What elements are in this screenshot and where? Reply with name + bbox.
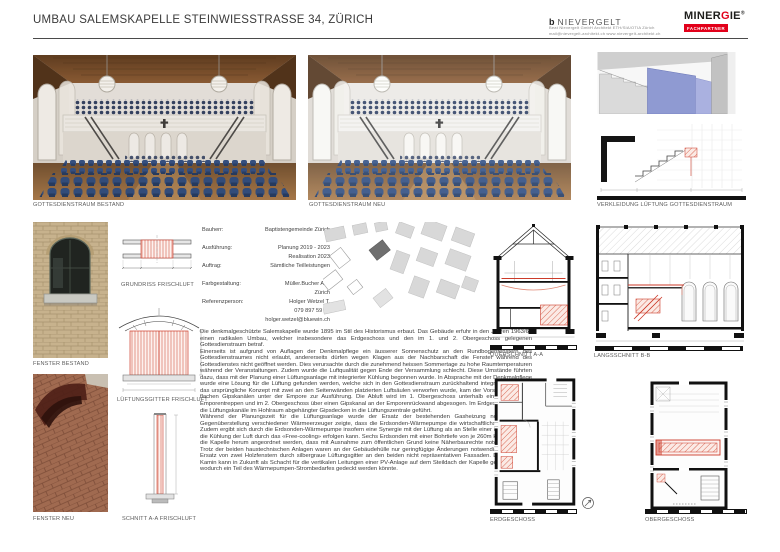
architect-address-line2: mail@nievergelt-architekt.ch www.nieverg… xyxy=(549,31,661,36)
info-value: holger.wetzel@bluewin.ch xyxy=(265,316,330,325)
drawing-querschnitt-aa xyxy=(490,223,577,343)
photo-gottesdienstraum-neu xyxy=(308,55,571,200)
info-row: Farbgestaltung:Müller.Bucher AG, xyxy=(202,280,330,289)
info-label: Referenzperson: xyxy=(202,298,243,307)
caption-langsschnitt: LANGSSCHNITT B-B xyxy=(594,353,650,359)
info-row: Referenzperson:Holger Wetzel T. xyxy=(202,298,330,307)
info-label: Farbgestaltung: xyxy=(202,280,241,289)
paragraph: Einerseits ist aufgrund von Auflagen der… xyxy=(200,349,532,414)
site-plan-chapel-footprint xyxy=(369,240,390,261)
caption-erdgeschoss: ERDGESCHOSS xyxy=(490,517,535,523)
minergie-text-g: G xyxy=(721,10,730,22)
scale-bar xyxy=(597,196,746,200)
drawing-obergeschoss xyxy=(649,380,729,511)
drawing-lueftungsgitter-frischluft xyxy=(113,298,205,394)
drawing-lueftung-detail xyxy=(597,118,746,194)
info-value: Sämtliche Teilleistungen xyxy=(270,262,330,271)
caption-fenster-bestand: FENSTER BESTAND xyxy=(33,361,89,367)
north-arrow-icon xyxy=(581,496,595,510)
info-row: Zürich xyxy=(202,289,330,298)
header-divider xyxy=(33,38,748,39)
info-row: Auftrag:Sämtliche Teilleistungen xyxy=(202,262,330,271)
info-value: Baptistengemeinde Zürich xyxy=(265,226,330,235)
photo-gottesdienstraum-bestand xyxy=(33,55,296,200)
render-verkleidung-lueftung xyxy=(597,52,736,114)
page-title: UMBAU SALEMSKAPELLE STEINWIESSTRASSE 34,… xyxy=(33,14,373,26)
minergie-fachpartner-badge: FACHPARTNER xyxy=(684,24,728,32)
drawing-erdgeschoss xyxy=(493,377,577,507)
architect-address-line1: Beat Nievergelt GmbH Architekt ETH/SIA/O… xyxy=(549,25,655,30)
presentation-board: UMBAU SALEMSKAPELLE STEINWIESSTRASSE 34,… xyxy=(0,0,780,552)
site-plan xyxy=(323,222,480,318)
info-label: Ausführung: xyxy=(202,244,232,253)
info-row: 079 897 59 89 xyxy=(202,307,330,316)
caption-schnitt: SCHNITT A-A FRISCHLUFT xyxy=(122,516,196,522)
caption-querschnitt: QUERSCHNITT A-A xyxy=(490,352,543,358)
caption-render: VERKLEIDUNG LÜFTUNG GOTTESDIENSTRAUM xyxy=(597,202,732,208)
caption-photo-bestand: GOTTESDIENSTRAUM BESTAND xyxy=(33,202,124,208)
info-row: Ausführung:Planung 2019 - 2023 xyxy=(202,244,330,253)
minergie-text-right: IE xyxy=(730,10,741,22)
caption-fenster-neu: FENSTER NEU xyxy=(33,516,74,522)
info-label: Bauherr: xyxy=(202,226,223,235)
drawing-grundriss-frischluft xyxy=(117,224,197,276)
scale-bar xyxy=(595,346,743,351)
project-description: Die denkmalgeschützte Salemskapelle wurd… xyxy=(200,329,532,473)
minergie-logo: MINERGIE® xyxy=(684,10,745,22)
registered-mark: ® xyxy=(741,10,745,16)
drawing-langsschnitt-bb xyxy=(594,223,746,345)
info-label: Auftrag: xyxy=(202,262,222,271)
drawing-schnitt-aa-frischluft xyxy=(130,410,190,510)
paragraph: Die denkmalgeschützte Salemskapelle wurd… xyxy=(200,329,532,349)
photo-fenster-bestand xyxy=(33,222,108,358)
project-info: Bauherr:Baptistengemeinde Zürich Ausführ… xyxy=(202,226,330,325)
info-row: holger.wetzel@bluewin.ch xyxy=(202,316,330,325)
caption-photo-neu: GOTTESDIENSTRAUM NEU xyxy=(309,202,385,208)
caption-obergeschoss: OBERGESCHOSS xyxy=(645,517,694,523)
scale-bar xyxy=(490,509,577,514)
caption-grundriss: GRUNDRISS FRISCHLUFT xyxy=(121,282,194,288)
info-row: Bauherr:Baptistengemeinde Zürich xyxy=(202,226,330,235)
caption-gitter: LÜFTUNGSGITTER FRISCHLUFT xyxy=(117,397,208,403)
minergie-text-left: MINER xyxy=(684,10,721,22)
info-row: Realisation 2023 xyxy=(202,253,330,262)
paragraph: Während der Planungszeit für die Lüftung… xyxy=(200,414,532,473)
scale-bar xyxy=(490,345,577,350)
photo-fenster-neu xyxy=(33,374,108,512)
scale-bar xyxy=(645,509,747,514)
